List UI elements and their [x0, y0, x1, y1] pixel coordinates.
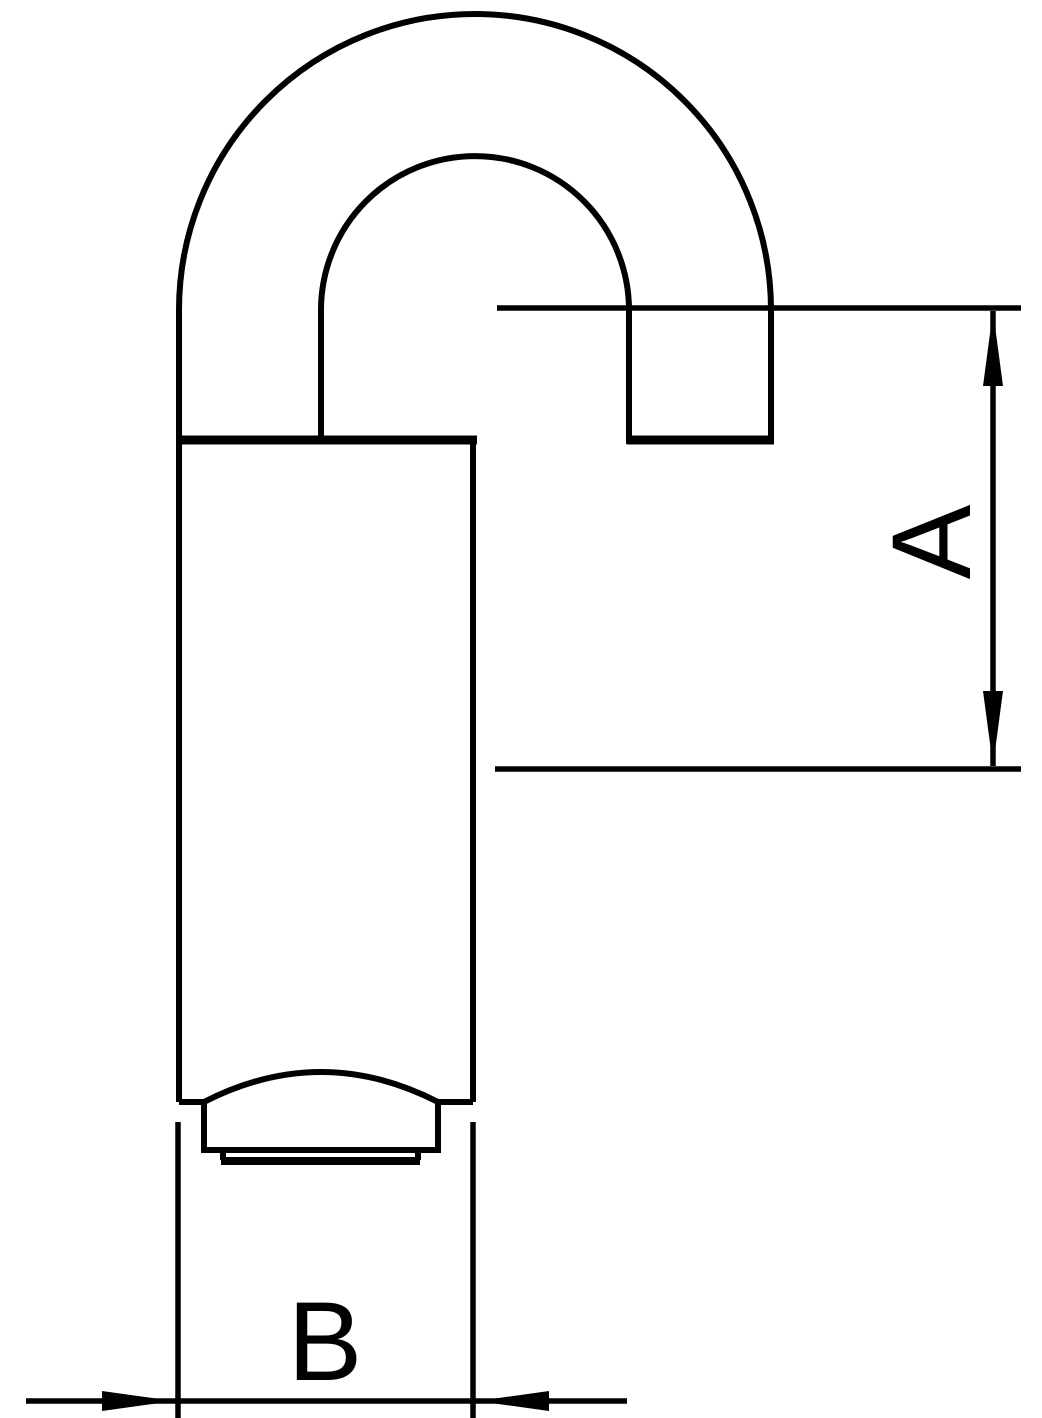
collar-top-arc — [204, 1072, 438, 1102]
collar-outline — [179, 1102, 473, 1150]
arrow-left-icon — [477, 1391, 549, 1411]
collar — [179, 1072, 473, 1161]
dimension-b: B — [26, 1122, 627, 1418]
dimension-a: A — [495, 308, 1021, 769]
hook-inner-outline — [321, 156, 629, 444]
technical-drawing: A B — [0, 0, 1042, 1418]
arrow-right-icon — [102, 1391, 174, 1411]
arrow-down-icon — [983, 691, 1003, 766]
dim-a-label: A — [869, 504, 994, 579]
dim-b-label: B — [288, 1279, 363, 1404]
arrow-up-icon — [983, 311, 1003, 386]
hook-body — [176, 14, 774, 1102]
